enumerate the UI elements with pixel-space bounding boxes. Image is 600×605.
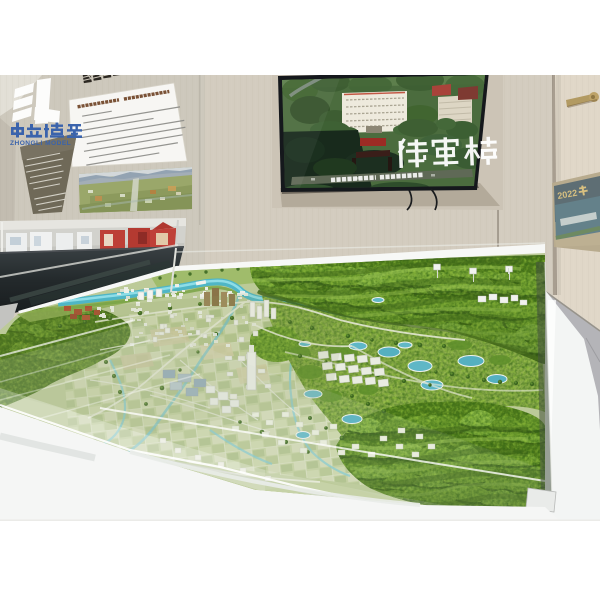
- svg-text:ZHONGLI MODEL: ZHONGLI MODEL: [10, 140, 71, 147]
